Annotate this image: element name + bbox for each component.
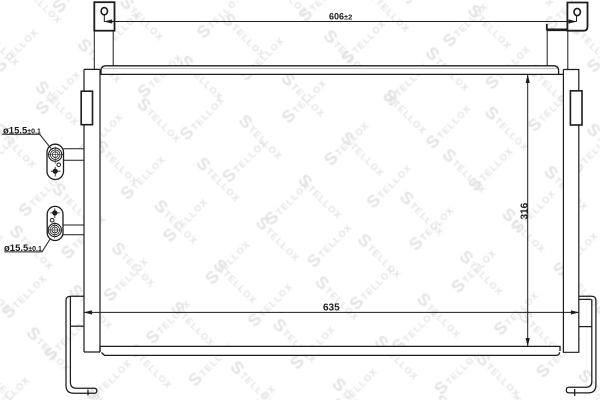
svg-text:635: 635: [323, 303, 340, 314]
svg-text:316: 316: [520, 202, 531, 219]
svg-text:606±2: 606±2: [329, 12, 352, 22]
